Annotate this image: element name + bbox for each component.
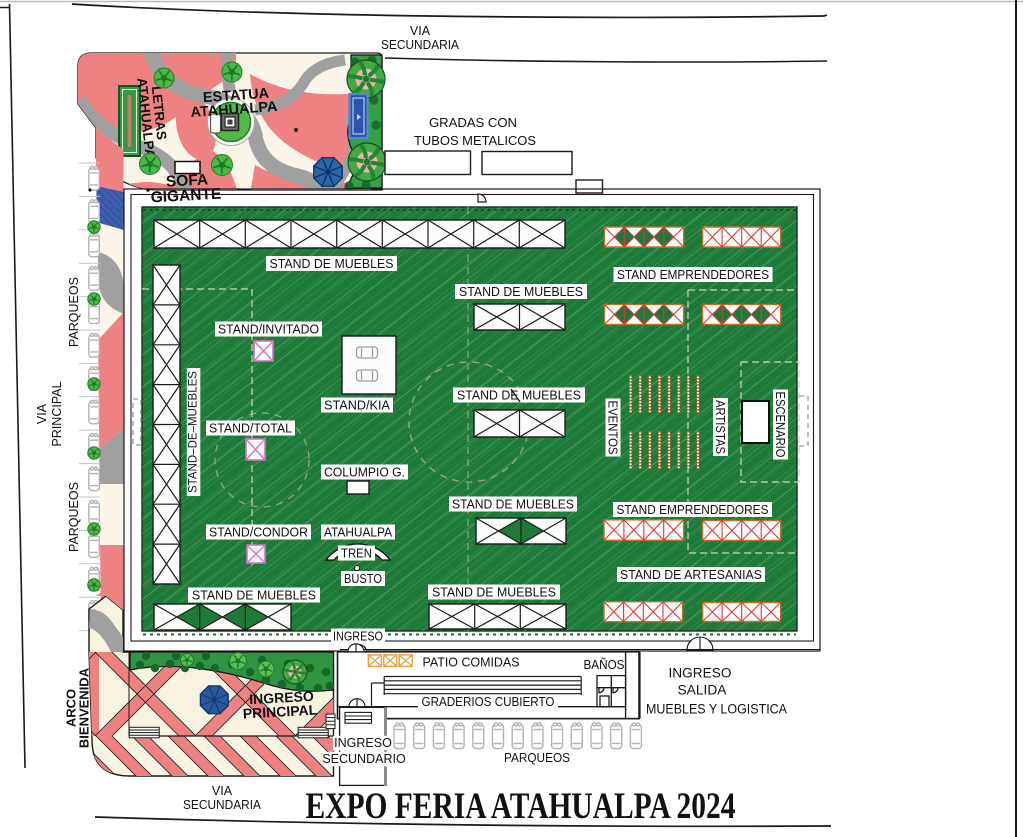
svg-text:STAND DE MUEBLES: STAND DE MUEBLES <box>459 284 583 299</box>
svg-text:PRINCIPAL: PRINCIPAL <box>50 381 64 446</box>
svg-text:SECUNDARIA: SECUNDARIA <box>381 38 460 52</box>
svg-text:STAND/TOTAL: STAND/TOTAL <box>209 421 292 436</box>
svg-text:VIA: VIA <box>410 24 431 38</box>
svg-text:COLUMPIO G.: COLUMPIO G. <box>324 465 405 480</box>
svg-text:VIA: VIA <box>35 403 49 424</box>
svg-text:ARTISTAS: ARTISTAS <box>713 400 728 454</box>
svg-text:TUBOS METALICOS: TUBOS METALICOS <box>414 134 536 148</box>
svg-text:STAND/CONDOR: STAND/CONDOR <box>209 525 308 540</box>
svg-text:STAND/INVITADO: STAND/INVITADO <box>218 322 319 337</box>
svg-text:MUEBLES Y LOGISTICA: MUEBLES Y LOGISTICA <box>646 702 787 717</box>
svg-text:STAND DE MUEBLES: STAND DE MUEBLES <box>452 497 574 512</box>
svg-text:BIENVENIDA: BIENVENIDA <box>77 667 92 748</box>
svg-text:STAND DE ARTESANIAS: STAND DE ARTESANIAS <box>620 567 762 582</box>
svg-text:BAÑOS: BAÑOS <box>584 657 625 672</box>
svg-text:PARQUEOS: PARQUEOS <box>67 277 81 347</box>
svg-text:INGRESO: INGRESO <box>333 629 383 644</box>
svg-text:ESCENARIO: ESCENARIO <box>773 392 788 458</box>
svg-text:PARQUEOS: PARQUEOS <box>504 750 570 765</box>
svg-text:VIA: VIA <box>212 784 233 798</box>
svg-text:PATIO COMIDAS: PATIO COMIDAS <box>423 655 520 670</box>
svg-text:STAND DE MUEBLES: STAND DE MUEBLES <box>270 256 394 271</box>
svg-text:ATAHUALPA: ATAHUALPA <box>324 525 392 540</box>
svg-text:GRADAS CON: GRADAS CON <box>429 116 517 130</box>
svg-text:INGRESO: INGRESO <box>334 736 392 750</box>
svg-text:PARQUEOS: PARQUEOS <box>67 482 81 552</box>
svg-text:STAND DE MUEBLES: STAND DE MUEBLES <box>192 588 316 603</box>
svg-text:TREN: TREN <box>341 546 372 561</box>
svg-text:EVENTOS: EVENTOS <box>606 401 621 455</box>
svg-text:EXPO FERIA ATAHUALPA 2024: EXPO FERIA ATAHUALPA 2024 <box>306 786 736 827</box>
svg-text:STAND DE MUEBLES: STAND DE MUEBLES <box>432 585 556 600</box>
svg-text:STAND/KIA: STAND/KIA <box>324 398 390 413</box>
svg-text:STAND EMPRENDEDORES: STAND EMPRENDEDORES <box>617 502 769 517</box>
svg-text:SALIDA: SALIDA <box>678 683 727 698</box>
svg-text:BUSTO: BUSTO <box>344 571 382 586</box>
svg-text:SECUNDARIO: SECUNDARIO <box>322 752 406 766</box>
svg-text:STAND–DE–MUEBLES: STAND–DE–MUEBLES <box>188 371 200 493</box>
svg-text:STAND EMPRENDEDORES: STAND EMPRENDEDORES <box>617 267 769 282</box>
svg-text:SECUNDARIA: SECUNDARIA <box>183 798 262 812</box>
svg-text:INGRESO: INGRESO <box>669 666 732 681</box>
svg-text:GRADERIOS CUBIERTO: GRADERIOS CUBIERTO <box>422 695 555 709</box>
